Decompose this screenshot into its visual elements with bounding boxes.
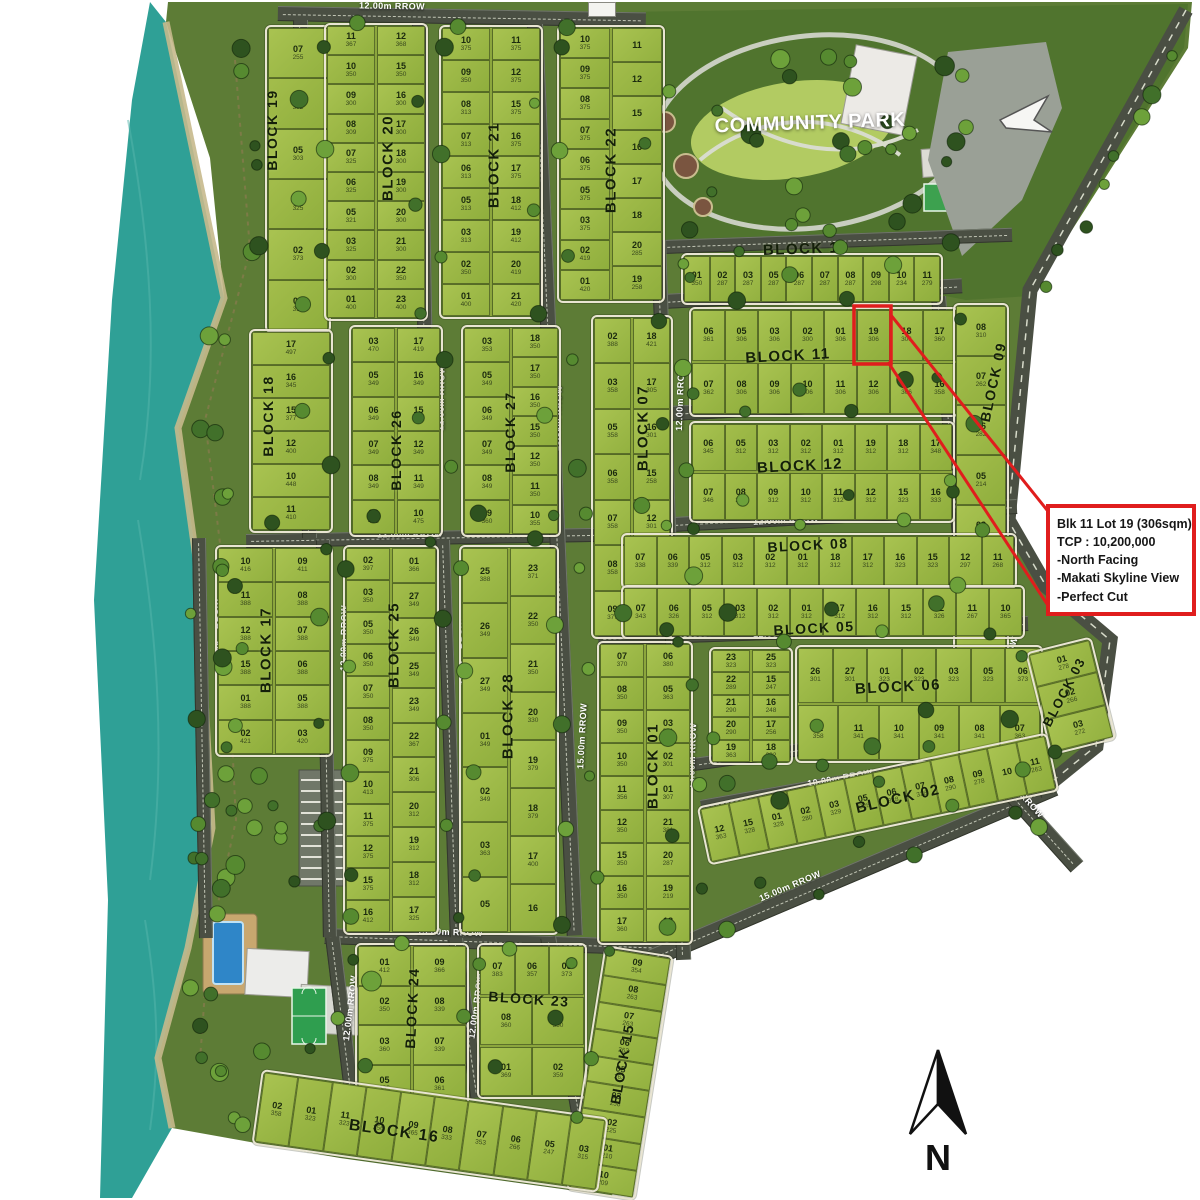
lot-blk18-17[interactable]: 17497	[252, 332, 330, 365]
lot-blk22-12[interactable]: 12	[612, 62, 662, 96]
lot-number: 18	[663, 917, 673, 926]
lot-blk05-12[interactable]: 12326	[923, 588, 956, 636]
lot-blk25-23[interactable]: 23349	[392, 688, 436, 723]
lot-blk01-19[interactable]: 19219	[646, 876, 690, 909]
lot-blk21-19[interactable]: 19412	[492, 220, 540, 252]
lot-blk23-05[interactable]: 05373	[549, 946, 584, 995]
lot-blk01-12[interactable]: 12350	[600, 810, 644, 843]
lot-blk27-17[interactable]: 17350	[512, 357, 558, 386]
lot-blk20-21[interactable]: 21300	[377, 230, 425, 259]
lot-blk24-01[interactable]: 01412	[358, 946, 411, 986]
lot-blk01-08[interactable]: 08350	[600, 677, 644, 710]
lot-blk22-02[interactable]: 02419	[560, 240, 610, 270]
lot-blk26-05[interactable]: 05349	[352, 362, 395, 396]
lot-blk25-16[interactable]: 16412	[346, 900, 390, 932]
lot-blk25-07[interactable]: 07350	[346, 676, 390, 708]
lot-blk19-02[interactable]: 02373	[268, 229, 328, 279]
lot-blk22-20[interactable]: 20285	[612, 232, 662, 266]
lot-area: 287	[768, 281, 779, 288]
lot-blk24-08[interactable]: 08339	[413, 986, 466, 1026]
lot-area: 355	[530, 521, 541, 528]
lot-blk20-08[interactable]: 08309	[327, 114, 375, 143]
lot-blk06w-15[interactable]: 15247	[752, 672, 790, 694]
lot-blk06w-19[interactable]: 19363	[712, 740, 750, 762]
lot-number: 06	[461, 164, 471, 173]
lot-blk12-15[interactable]: 15323	[887, 473, 920, 520]
lot-blk23-06[interactable]: 06357	[515, 946, 550, 995]
lot-blk05-15[interactable]: 15312	[889, 588, 922, 636]
lot-blk11-07[interactable]: 07362	[692, 363, 725, 414]
lot-number: 25	[409, 662, 419, 671]
lot-blk12-11[interactable]: 11312	[822, 473, 855, 520]
lot-blk21-10[interactable]: 10375	[442, 28, 490, 60]
lot-blk28-23[interactable]: 23371	[510, 548, 556, 596]
lot-blk17-07[interactable]: 07388	[275, 617, 330, 651]
lot-blk07-18[interactable]: 18421	[633, 318, 670, 363]
lot-blk12-09[interactable]: 09312	[757, 473, 790, 520]
lot-blk11-10[interactable]: 10306	[791, 363, 824, 414]
lot-blk12-10[interactable]: 10312	[790, 473, 823, 520]
lot-area: 234	[896, 281, 907, 288]
lot-area: 323	[898, 498, 909, 505]
lot-blk05-16[interactable]: 16312	[856, 588, 889, 636]
lot-area: 247	[766, 685, 777, 692]
lot-blk20-20[interactable]: 20300	[377, 201, 425, 230]
lot-blk21-21[interactable]: 21420	[492, 284, 540, 316]
lot-blk20-23[interactable]: 23400	[377, 289, 425, 318]
lot-blk27-15[interactable]: 15350	[512, 416, 558, 445]
lot-blk01-16[interactable]: 16350	[600, 876, 644, 909]
lot-blk20-10[interactable]: 10350	[327, 55, 375, 84]
lot-blk26-10[interactable]: 10475	[397, 500, 440, 534]
lot-number: 08	[297, 591, 307, 600]
lot-blk07-05[interactable]: 05358	[594, 409, 631, 454]
lot-area: 209	[597, 1180, 609, 1188]
lot-blk27-16[interactable]: 16350	[512, 387, 558, 416]
lot-blk22-15[interactable]: 15	[612, 96, 662, 130]
lot-blk25-09[interactable]: 09375	[346, 740, 390, 772]
lot-area: 313	[461, 206, 472, 213]
lot-blk11-08[interactable]: 08306	[725, 363, 758, 414]
lot-blk21-03[interactable]: 03313	[442, 220, 490, 252]
lot-number: 25	[480, 567, 490, 576]
lot-number: 12	[286, 439, 296, 448]
lot-blk20-15[interactable]: 15350	[377, 55, 425, 84]
lot-blk21-12[interactable]: 12375	[492, 60, 540, 92]
lot-blk08-15[interactable]: 15323	[917, 536, 950, 586]
lot-area: 323	[766, 663, 777, 670]
lot-area: 306	[901, 390, 912, 397]
lot-number: 15	[530, 423, 540, 432]
lot-blk05-05[interactable]: 05312	[690, 588, 723, 636]
lot-blk06e-03[interactable]: 03323	[936, 648, 971, 703]
blocks-layer: 072550630205303033250237301312BLOCK 1911…	[0, 0, 1200, 1200]
lot-blk01-18[interactable]: 18321	[646, 909, 690, 942]
lot-blk06w-17[interactable]: 17256	[752, 717, 790, 739]
lot-blk11-19[interactable]: 19306	[857, 310, 890, 361]
lot-blk01-17[interactable]: 17360	[600, 909, 644, 942]
lot-number: 19	[528, 756, 538, 765]
lot-area: 310	[976, 333, 987, 340]
lot-number: 07	[297, 626, 307, 635]
lot-blk25-02[interactable]: 02397	[346, 548, 390, 580]
lot-blk22-16[interactable]: 16	[612, 130, 662, 164]
lot-number: 17	[530, 364, 540, 373]
lot-blk06w-22[interactable]: 22289	[712, 672, 750, 694]
lot-blk08-11[interactable]: 11268	[982, 536, 1015, 586]
lot-blk18-10[interactable]: 10448	[252, 464, 330, 497]
lot-blk17-10[interactable]: 10416	[218, 548, 273, 582]
lot-area: 302	[293, 105, 304, 112]
lot-blk19-03[interactable]: 03325	[268, 179, 328, 229]
lot-blk20-03[interactable]: 03325	[327, 230, 375, 259]
lot-area: 420	[580, 287, 591, 294]
lot-blk25-15[interactable]: 15375	[346, 868, 390, 900]
lot-blk01-06[interactable]: 06380	[646, 644, 690, 677]
lot-blk17-09[interactable]: 09411	[275, 548, 330, 582]
lot-number: 03	[733, 553, 743, 562]
lot-blk26-16[interactable]: 16349	[397, 362, 440, 396]
lot-blk22-19[interactable]: 19258	[612, 266, 662, 300]
lot-number: 15	[901, 604, 911, 613]
lot-blk07-03[interactable]: 03358	[594, 363, 631, 408]
lot-blk08-07[interactable]: 07338	[624, 536, 657, 586]
lot-area: 353	[482, 347, 493, 354]
lot-blk20-02[interactable]: 02300	[327, 260, 375, 289]
lot-blk08-17[interactable]: 17312	[852, 536, 885, 586]
lot-blk10-10[interactable]: 10234	[889, 256, 915, 302]
lot-blk12-05[interactable]: 05312	[725, 424, 758, 471]
lot-area: 400	[461, 302, 472, 309]
lot-blk11-12[interactable]: 12306	[857, 363, 890, 414]
lot-blk28-26[interactable]: 26349	[462, 603, 508, 658]
lot-blk11-17[interactable]: 17360	[923, 310, 956, 361]
lot-number: 05	[769, 271, 779, 280]
lot-area: 388	[480, 577, 491, 584]
lot-number: 07	[461, 132, 471, 141]
lot-blk05-06[interactable]: 06326	[657, 588, 690, 636]
lot-blk11-06[interactable]: 06361	[692, 310, 725, 361]
lot-blk20-06[interactable]: 06325	[327, 172, 375, 201]
lot-blk27-10[interactable]: 10355	[512, 505, 558, 534]
lot-blk28-20[interactable]: 20330	[510, 692, 556, 740]
lot-blk28-16[interactable]: 16	[510, 884, 556, 932]
lot-blk22-01[interactable]: 01420	[560, 270, 610, 300]
lot-blk27-09[interactable]: 09360	[464, 500, 510, 534]
lot-blk10-11[interactable]: 11279	[914, 256, 940, 302]
lot-number: 07	[492, 962, 502, 971]
lot-blk19-01[interactable]: 01312	[268, 280, 328, 330]
lot-blk06e-12[interactable]: 12358	[798, 705, 838, 760]
lot-blk28-05[interactable]: 05	[462, 877, 508, 932]
lot-blk10-08[interactable]: 08287	[838, 256, 864, 302]
lot-blk27-12[interactable]: 12350	[512, 446, 558, 475]
lot-area: 363	[663, 695, 674, 702]
lot-blk01-10[interactable]: 10350	[600, 743, 644, 776]
lot-number: 01	[580, 277, 590, 286]
lot-blk28-18[interactable]: 18379	[510, 788, 556, 836]
lot-blk25-20[interactable]: 20312	[392, 792, 436, 827]
lot-blk01-09[interactable]: 09350	[600, 710, 644, 743]
lot-blk07-02[interactable]: 02388	[594, 318, 631, 363]
lot-blk25-12[interactable]: 12375	[346, 836, 390, 868]
lot-blk12-19[interactable]: 19312	[855, 424, 888, 471]
lot-area: 421	[646, 342, 657, 349]
lot-area: 379	[528, 814, 539, 821]
lot-area: 349	[413, 416, 424, 423]
lot-blk21-09[interactable]: 09350	[442, 60, 490, 92]
lot-blk22-11[interactable]: 11	[612, 28, 662, 62]
lot-blk23-07[interactable]: 07383	[480, 946, 515, 995]
lot-number: 06	[482, 406, 492, 415]
lot-blk28-17[interactable]: 17400	[510, 836, 556, 884]
lot-blk17-03[interactable]: 03420	[275, 720, 330, 754]
lot-number: 12	[617, 818, 627, 827]
lot-blk18-11[interactable]: 11410	[252, 497, 330, 530]
lot-number: 05	[562, 962, 572, 971]
lot-blk05-07[interactable]: 07343	[624, 588, 657, 636]
lot-blk11-16[interactable]: 16358	[923, 363, 956, 414]
lot-area: 350	[617, 894, 628, 901]
lot-blk21-07[interactable]: 07313	[442, 124, 490, 156]
lot-blk10-07[interactable]: 07287	[812, 256, 838, 302]
lot-blk22-10[interactable]: 10375	[560, 28, 610, 58]
lot-number: 03	[368, 337, 378, 346]
lot-blk11-15[interactable]: 15306	[890, 363, 923, 414]
lot-blk21-15[interactable]: 15375	[492, 92, 540, 124]
lot-blk21-08[interactable]: 08313	[442, 92, 490, 124]
lot-blk28-19[interactable]: 19379	[510, 740, 556, 788]
lot-number: 05	[663, 685, 673, 694]
lot-area: 312	[768, 449, 779, 456]
lot-blk20-16[interactable]: 16300	[377, 84, 425, 113]
lot-area: 371	[528, 574, 539, 581]
lot-number: 12	[866, 488, 876, 497]
lot-area: 328	[773, 821, 785, 830]
lot-blk23-02[interactable]: 02359	[532, 1047, 584, 1096]
lot-number: 02	[293, 246, 303, 255]
lot-blk10-09[interactable]: 09298	[863, 256, 889, 302]
lot-blk20-12[interactable]: 12368	[377, 26, 425, 55]
lot-number: 03	[769, 327, 779, 336]
lot-number: 15	[240, 660, 250, 669]
lot-number: 19	[663, 884, 673, 893]
lot-number: 18	[898, 439, 908, 448]
lot-area: 287	[743, 281, 754, 288]
lot-blk06e-10[interactable]: 10341	[879, 705, 919, 760]
lot-blk22-18[interactable]: 18	[612, 198, 662, 232]
lot-blk23-01[interactable]: 01369	[480, 1047, 532, 1096]
lot-blk11-18[interactable]: 18306	[890, 310, 923, 361]
lot-blk17-06[interactable]: 06388	[275, 651, 330, 685]
lot-blk10-01[interactable]: 01350	[684, 256, 710, 302]
lot-blk01-05[interactable]: 05363	[646, 677, 690, 710]
lot-blk20-22[interactable]: 22350	[377, 260, 425, 289]
lot-number: 15	[396, 62, 406, 71]
lot-area: 419	[580, 256, 591, 263]
lot-area: 338	[635, 563, 646, 570]
block-03: 012780226603272	[1029, 640, 1113, 752]
lot-number: 16	[632, 143, 642, 152]
lot-area: 268	[992, 563, 1003, 570]
lot-blk25-17[interactable]: 17325	[392, 897, 436, 932]
lot-area: 358	[607, 570, 618, 577]
lot-blk22-08[interactable]: 08375	[560, 88, 610, 118]
lot-blk26-03[interactable]: 03470	[352, 328, 395, 362]
lot-blk05-10[interactable]: 10365	[989, 588, 1022, 636]
lot-area: 377	[607, 615, 618, 622]
lot-blk06e-26[interactable]: 26301	[798, 648, 833, 703]
lot-blk21-01[interactable]: 01400	[442, 284, 490, 316]
lot-blk05-11[interactable]: 11267	[956, 588, 989, 636]
lot-blk25-21[interactable]: 21306	[392, 757, 436, 792]
lot-blk27-11[interactable]: 11350	[512, 475, 558, 504]
lot-blk25-01[interactable]: 01366	[392, 548, 436, 583]
lot-blk05-03[interactable]: 03312	[724, 588, 757, 636]
lot-blk07-06[interactable]: 06358	[594, 454, 631, 499]
lot-blk10-05[interactable]: 05287	[761, 256, 787, 302]
lot-blk17-05[interactable]: 05388	[275, 685, 330, 719]
lot-blk12-16[interactable]: 16333	[920, 473, 953, 520]
lot-blk11-11[interactable]: 11306	[824, 363, 857, 414]
lot-blk08-03[interactable]: 03312	[722, 536, 755, 586]
lot-blk20-01[interactable]: 01400	[327, 289, 375, 318]
lot-blk25-10[interactable]: 10413	[346, 772, 390, 804]
lot-blk26-17[interactable]: 17419	[397, 328, 440, 362]
lot-blk25-06[interactable]: 06350	[346, 644, 390, 676]
lot-area: 312	[768, 498, 779, 505]
lot-area: 306	[835, 390, 846, 397]
lot-area: 321	[663, 927, 674, 934]
lot-area: 366	[409, 567, 420, 574]
lot-area: 375	[580, 136, 591, 143]
lot-blk08-06[interactable]: 06339	[657, 536, 690, 586]
lot-blk17-08[interactable]: 08388	[275, 582, 330, 616]
lot-blk25-18[interactable]: 18312	[392, 862, 436, 897]
lot-blk19-07[interactable]: 07255	[268, 28, 328, 78]
lot-blk25-19[interactable]: 19312	[392, 827, 436, 862]
lot-blk06w-23[interactable]: 23323	[712, 650, 750, 672]
lot-blk22-09[interactable]: 09375	[560, 58, 610, 88]
lot-blk22-17[interactable]: 17	[612, 164, 662, 198]
lot-area: 300	[396, 101, 407, 108]
lot-blk25-03[interactable]: 03350	[346, 580, 390, 612]
lot-blk10-06[interactable]: 06287	[786, 256, 812, 302]
lot-blk21-20[interactable]: 20419	[492, 252, 540, 284]
lot-blk27-03[interactable]: 03353	[464, 328, 510, 362]
lot-blk01-11[interactable]: 11356	[600, 776, 644, 809]
lot-blk25-05[interactable]: 05350	[346, 612, 390, 644]
lot-blk01-20[interactable]: 20287	[646, 843, 690, 876]
block-label: BLOCK 28	[500, 673, 517, 759]
lot-blk12-17[interactable]: 17348	[920, 424, 953, 471]
lot-number: 11	[617, 785, 627, 794]
lot-area: 323	[948, 677, 959, 684]
lot-blk25-08[interactable]: 08350	[346, 708, 390, 740]
lot-blk27-18[interactable]: 18350	[512, 328, 558, 357]
lot-blk06w-18[interactable]: 18382	[752, 740, 790, 762]
lot-blk11-09[interactable]: 09306	[758, 363, 791, 414]
lot-blk06w-20[interactable]: 20290	[712, 717, 750, 739]
lot-blk12-12[interactable]: 12312	[855, 473, 888, 520]
lot-number: 03	[580, 216, 590, 225]
lot-blk12-08[interactable]: 08312	[725, 473, 758, 520]
lot-number: 05	[297, 694, 307, 703]
lot-blk21-05[interactable]: 05313	[442, 188, 490, 220]
lot-number: 08	[434, 997, 444, 1006]
lot-blk22-03[interactable]: 03375	[560, 209, 610, 239]
lot-number: 16	[396, 91, 406, 100]
lot-area: 350	[530, 403, 541, 410]
lot-blk09-05[interactable]: 05214	[956, 455, 1006, 505]
lot-area: 360	[617, 927, 628, 934]
lot-number: 06	[669, 604, 679, 613]
lot-number: 16	[895, 553, 905, 562]
lot-area: 350	[363, 726, 374, 733]
lot-blk28-22[interactable]: 22350	[510, 596, 556, 644]
lot-blk17-02[interactable]: 02421	[218, 720, 273, 754]
lot-blk25-22[interactable]: 22367	[392, 723, 436, 758]
block-label: BLOCK 27	[502, 391, 518, 472]
lot-blk01-07[interactable]: 07370	[600, 644, 644, 677]
lot-blk28-21[interactable]: 21350	[510, 644, 556, 692]
lot-blk28-25[interactable]: 25388	[462, 548, 508, 603]
lot-area: 323	[927, 563, 938, 570]
lot-area: 377	[286, 416, 297, 423]
lot-blk06w-16[interactable]: 16248	[752, 695, 790, 717]
lot-area: 369	[501, 1073, 512, 1080]
lot-blk12-18[interactable]: 18312	[887, 424, 920, 471]
lot-blk08-05[interactable]: 05312	[689, 536, 722, 586]
lot-blk10-02[interactable]: 02287	[710, 256, 736, 302]
lot-blk01-21[interactable]: 21381	[646, 810, 690, 843]
lot-blk06e-09[interactable]: 09341	[919, 705, 959, 760]
lot-blk26-09[interactable]: 09475	[352, 500, 395, 534]
lot-blk06w-25[interactable]: 25323	[752, 650, 790, 672]
lot-blk12-07[interactable]: 07346	[692, 473, 725, 520]
lot-area: 370	[617, 662, 628, 669]
lot-blk20-07[interactable]: 07325	[327, 143, 375, 172]
lot-number: 01	[379, 958, 389, 967]
lot-blk20-09[interactable]: 09300	[327, 84, 375, 113]
lot-blk06e-11[interactable]: 11341	[838, 705, 878, 760]
lot-number: 10	[897, 271, 907, 280]
lot-blk10-03[interactable]: 03287	[735, 256, 761, 302]
lot-blk20-11[interactable]: 11367	[327, 26, 375, 55]
lot-blk08-12[interactable]: 12297	[949, 536, 982, 586]
lot-number: 23	[396, 295, 406, 304]
lot-blk12-06[interactable]: 06345	[692, 424, 725, 471]
lot-number: 03	[735, 604, 745, 613]
lot-blk28-03[interactable]: 03363	[462, 822, 508, 877]
lot-blk06e-05[interactable]: 05323	[971, 648, 1006, 703]
lot-number: 07	[368, 440, 378, 449]
lot-blk25-11[interactable]: 11375	[346, 804, 390, 836]
lot-blk28-02[interactable]: 02349	[462, 767, 508, 822]
lot-blk21-02[interactable]: 02350	[442, 252, 490, 284]
lot-blk08-16[interactable]: 16323	[884, 536, 917, 586]
lot-blk21-11[interactable]: 11375	[492, 28, 540, 60]
lot-blk21-06[interactable]: 06313	[442, 156, 490, 188]
lot-blk01-15[interactable]: 15350	[600, 843, 644, 876]
lot-blk24-07[interactable]: 07339	[413, 1025, 466, 1065]
lot-number: 27	[409, 592, 419, 601]
lot-blk06w-21[interactable]: 21290	[712, 695, 750, 717]
lot-number: 09	[607, 605, 617, 614]
lot-number: 10	[801, 488, 811, 497]
lot-number: 16	[511, 132, 521, 141]
lot-blk20-05[interactable]: 05321	[327, 201, 375, 230]
